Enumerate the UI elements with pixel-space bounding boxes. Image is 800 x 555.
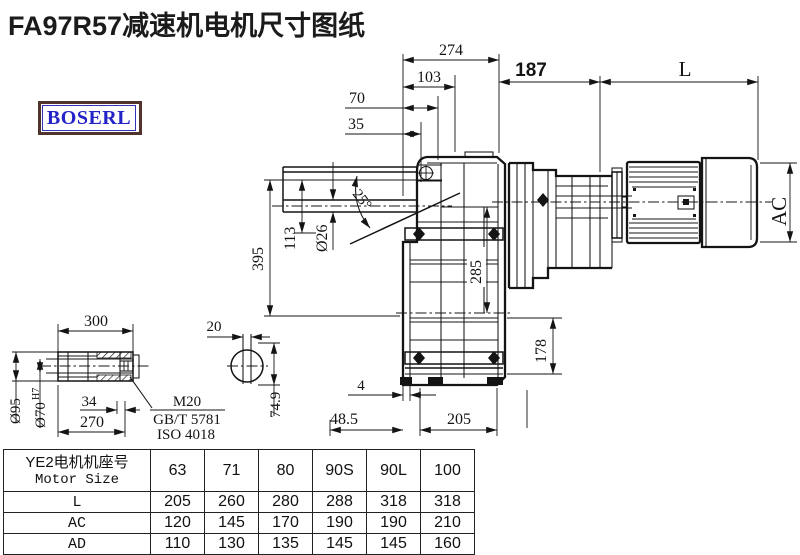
motor-size-label-en: Motor Size <box>4 472 150 488</box>
dim-4: 4 <box>357 378 365 394</box>
dim-angle-25: 25° <box>349 187 375 213</box>
dim-L: L <box>679 57 692 81</box>
table-cell: 145 <box>313 534 367 555</box>
table-cell: 190 <box>313 513 367 534</box>
table-cell: 160 <box>421 534 475 555</box>
front-view-housing <box>396 152 512 385</box>
standard-iso4018: ISO 4018 <box>157 427 215 443</box>
thread-callout-m20: M20 <box>173 394 201 410</box>
dim-20: 20 <box>207 319 222 335</box>
motor-size-header-cell: YE2电机机座号 Motor Size <box>4 450 151 492</box>
dim-74-9: 74.9 <box>268 392 284 418</box>
row-label-AD: AD <box>4 534 151 555</box>
row-label-L: L <box>4 492 151 513</box>
motor-size-table: YE2电机机座号 Motor Size 63 71 80 90S 90L 100… <box>3 449 475 555</box>
dim-274: 274 <box>439 42 463 59</box>
table-cell: 110 <box>151 534 205 555</box>
dim-AC: AC <box>767 197 791 226</box>
dim-diameter-26: Ø26 <box>314 224 331 252</box>
table-cell: 318 <box>421 492 475 513</box>
dim-tolerance-h7: H7 <box>31 388 42 400</box>
dim-34: 34 <box>82 394 98 410</box>
table-cell: 190 <box>367 513 421 534</box>
dim-205: 205 <box>447 411 471 428</box>
table-header-row: YE2电机机座号 Motor Size 63 71 80 90S 90L 100 <box>4 450 475 492</box>
dim-178: 178 <box>533 339 550 363</box>
front-view-dimensions: 274 103 70 35 395 113 Ø26 25° <box>250 42 562 436</box>
dim-187: 187 <box>515 60 547 81</box>
dim-48-5: 48.5 <box>330 411 358 428</box>
frame-size-100: 100 <box>421 450 475 492</box>
motor-body <box>627 162 700 243</box>
table-cell: 260 <box>205 492 259 513</box>
fan-cowl <box>702 158 757 247</box>
frame-size-63: 63 <box>151 450 205 492</box>
side-view-dimensions: 187 L AC <box>499 57 797 242</box>
shaft-detail-view: 300 Ø95 Ø70 H7 34 <box>8 313 225 443</box>
dim-113: 113 <box>282 227 299 250</box>
table-row-AD: AD 110 130 135 145 145 160 <box>4 534 475 555</box>
frame-size-90s: 90S <box>313 450 367 492</box>
table-cell: 210 <box>421 513 475 534</box>
dim-395: 395 <box>250 247 267 271</box>
standard-gbt5781: GB/T 5781 <box>153 412 221 428</box>
table-row-AC: AC 120 145 170 190 190 210 <box>4 513 475 534</box>
frame-size-71: 71 <box>205 450 259 492</box>
table-cell: 145 <box>367 534 421 555</box>
frame-size-90l: 90L <box>367 450 421 492</box>
dim-diameter-95: Ø95 <box>8 398 24 424</box>
table-cell: 130 <box>205 534 259 555</box>
dim-35: 35 <box>348 116 364 133</box>
row-label-AC: AC <box>4 513 151 534</box>
table-cell: 280 <box>259 492 313 513</box>
dim-diameter-70: Ø70 <box>33 402 49 428</box>
dim-70: 70 <box>349 90 365 107</box>
shaft-end-view: 20 74.9 <box>207 319 285 418</box>
dim-103: 103 <box>417 69 441 86</box>
dim-300: 300 <box>84 313 108 330</box>
table-cell: 205 <box>151 492 205 513</box>
table-cell: 145 <box>205 513 259 534</box>
table-cell: 135 <box>259 534 313 555</box>
frame-size-80: 80 <box>259 450 313 492</box>
table-cell: 288 <box>313 492 367 513</box>
table-cell: 318 <box>367 492 421 513</box>
table-cell: 120 <box>151 513 205 534</box>
table-row-L: L 205 260 280 288 318 318 <box>4 492 475 513</box>
table-cell: 170 <box>259 513 313 534</box>
motor-size-label-cn: YE2电机机座号 <box>4 454 150 472</box>
side-view-gearmotor <box>492 158 772 288</box>
dim-270: 270 <box>80 414 104 431</box>
dim-285: 285 <box>468 260 485 284</box>
